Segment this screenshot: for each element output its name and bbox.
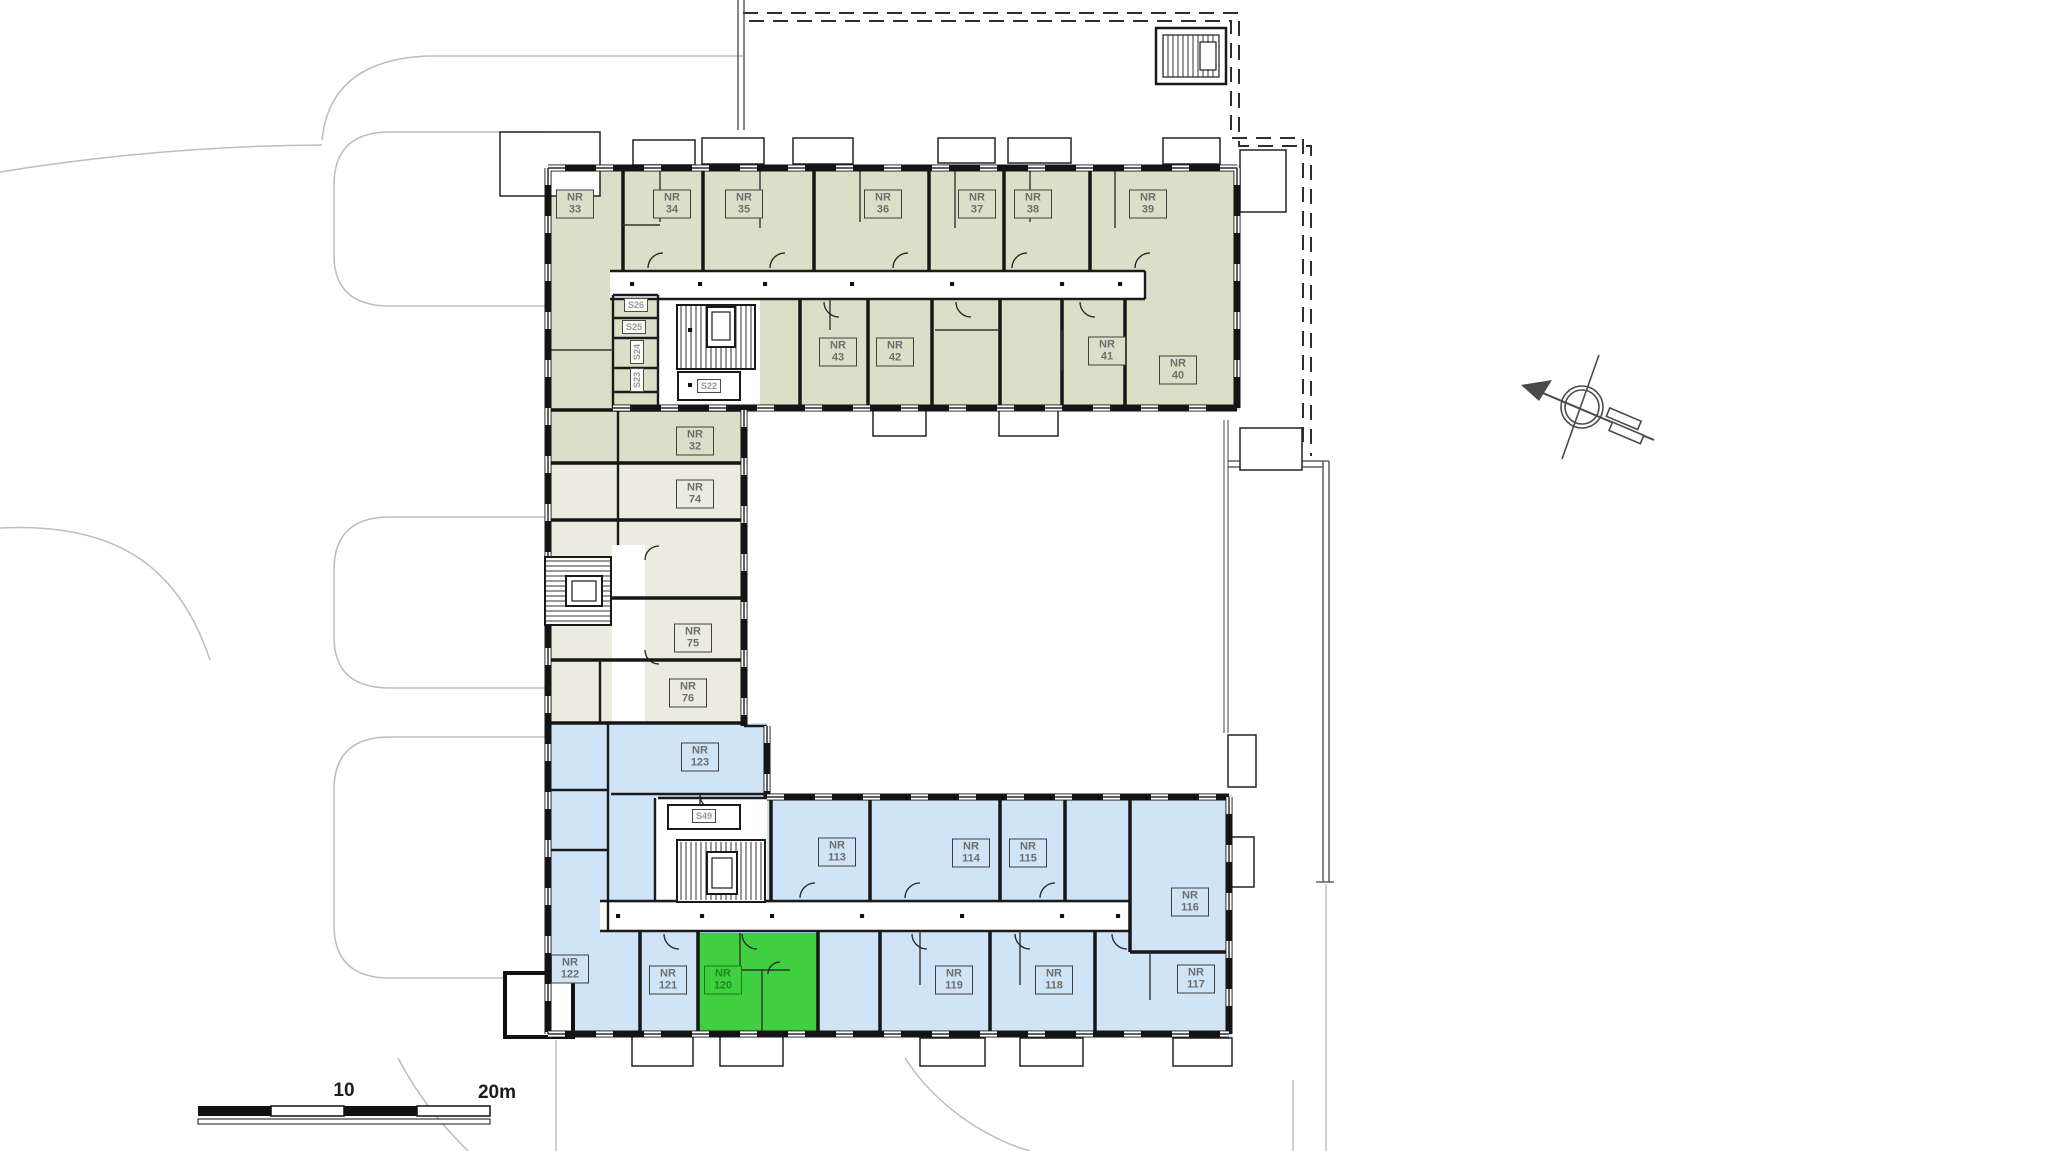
unit-label-nr-118[interactable]: NR 118: [1035, 966, 1073, 995]
fence-line: [1224, 420, 1334, 882]
storage-label-s25: S25: [622, 320, 646, 334]
stairwell-south: [677, 840, 765, 902]
plan-canvas: [0, 0, 2048, 1151]
compass-inner-circle: [1565, 390, 1599, 424]
unit-label-nr-34[interactable]: NR 34: [653, 190, 691, 219]
stairwell-north: [677, 305, 755, 369]
unit-label-nr-36[interactable]: NR 36: [864, 190, 902, 219]
unit-label-nr-122[interactable]: NR 122: [551, 955, 589, 984]
unit-label-nr-115[interactable]: NR 115: [1009, 839, 1047, 868]
unit-label-nr-120-highlighted[interactable]: NR 120: [704, 966, 742, 995]
unit-label-nr-76[interactable]: NR 76: [669, 679, 707, 708]
storage-label-s24: S24: [630, 340, 644, 364]
unit-label-nr-37[interactable]: NR 37: [958, 190, 996, 219]
compass-outer-circle: [1561, 386, 1603, 428]
unit-label-nr-113[interactable]: NR 113: [818, 838, 856, 867]
scale-bar: [198, 1106, 490, 1124]
scale-end-label: 20m: [478, 1082, 516, 1104]
unit-label-nr-41[interactable]: NR 41: [1088, 337, 1126, 366]
stairwell-external-northeast: [1156, 28, 1226, 84]
storage-label-s26: S26: [624, 298, 648, 312]
unit-label-nr-42[interactable]: NR 42: [876, 338, 914, 367]
storage-label-s23: S23: [630, 368, 644, 392]
stairwell-west: [545, 557, 611, 625]
unit-label-nr-75[interactable]: NR 75: [674, 624, 712, 653]
storage-label-s49: S49: [692, 809, 716, 823]
unit-label-nr-114[interactable]: NR 114: [952, 839, 990, 868]
unit-label-nr-43[interactable]: NR 43: [819, 338, 857, 367]
unit-label-nr-39[interactable]: NR 39: [1129, 190, 1167, 219]
unit-label-nr-40[interactable]: NR 40: [1159, 356, 1197, 385]
unit-label-nr-123[interactable]: NR 123: [681, 743, 719, 772]
unit-label-nr-74[interactable]: NR 74: [676, 480, 714, 509]
storage-label-s22: S22: [697, 379, 721, 393]
unit-label-nr-35[interactable]: NR 35: [725, 190, 763, 219]
unit-label-nr-38[interactable]: NR 38: [1014, 190, 1052, 219]
north-arrowhead-icon: [1521, 380, 1552, 401]
scale-mid-label: 10: [333, 1080, 354, 1102]
unit-label-nr-121[interactable]: NR 121: [649, 966, 687, 995]
unit-label-nr-32[interactable]: NR 32: [676, 427, 714, 456]
unit-label-nr-119[interactable]: NR 119: [935, 966, 973, 995]
unit-label-nr-116[interactable]: NR 116: [1171, 888, 1209, 917]
unit-label-nr-117[interactable]: NR 117: [1177, 965, 1215, 994]
north-arrow: [1521, 355, 1654, 459]
unit-label-nr-33[interactable]: NR 33: [556, 190, 594, 219]
floor-plan: NR 33 NR 34 NR 35 NR 36 NR 37 NR 38 NR 3…: [0, 0, 2048, 1151]
